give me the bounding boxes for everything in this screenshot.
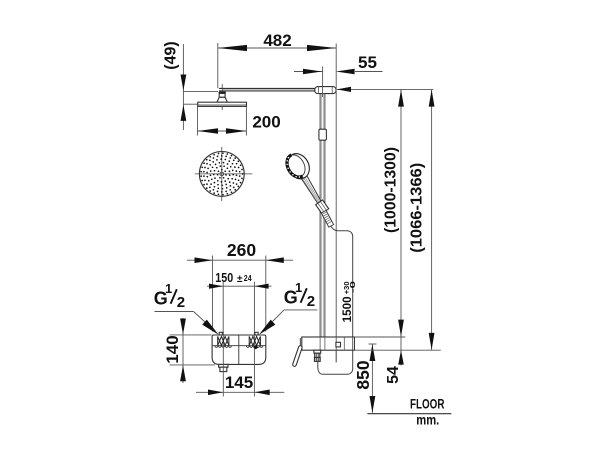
svg-text:(1066-1366): (1066-1366) <box>408 163 425 253</box>
svg-text:150: 150 <box>215 271 233 285</box>
svg-text:1: 1 <box>165 281 172 296</box>
svg-text:2: 2 <box>177 294 185 311</box>
svg-text:145: 145 <box>225 373 253 392</box>
svg-text:482: 482 <box>263 31 291 50</box>
svg-text:260: 260 <box>227 240 256 260</box>
svg-text:55: 55 <box>358 53 377 72</box>
svg-text:FLOOR: FLOOR <box>410 396 445 411</box>
svg-text:-0: -0 <box>350 281 357 293</box>
svg-text:850: 850 <box>353 360 373 389</box>
svg-text:200: 200 <box>252 113 280 132</box>
svg-text:1500: 1500 <box>340 296 354 322</box>
svg-text:140: 140 <box>163 335 182 363</box>
svg-text:2: 2 <box>307 293 315 310</box>
svg-text:(49): (49) <box>163 41 180 69</box>
svg-text:24: 24 <box>244 274 252 283</box>
svg-text:mm.: mm. <box>416 411 439 427</box>
svg-text:±: ± <box>237 274 243 285</box>
svg-text:1: 1 <box>295 280 302 295</box>
svg-text:(1000-1300): (1000-1300) <box>383 147 400 233</box>
svg-text:54: 54 <box>385 366 402 384</box>
